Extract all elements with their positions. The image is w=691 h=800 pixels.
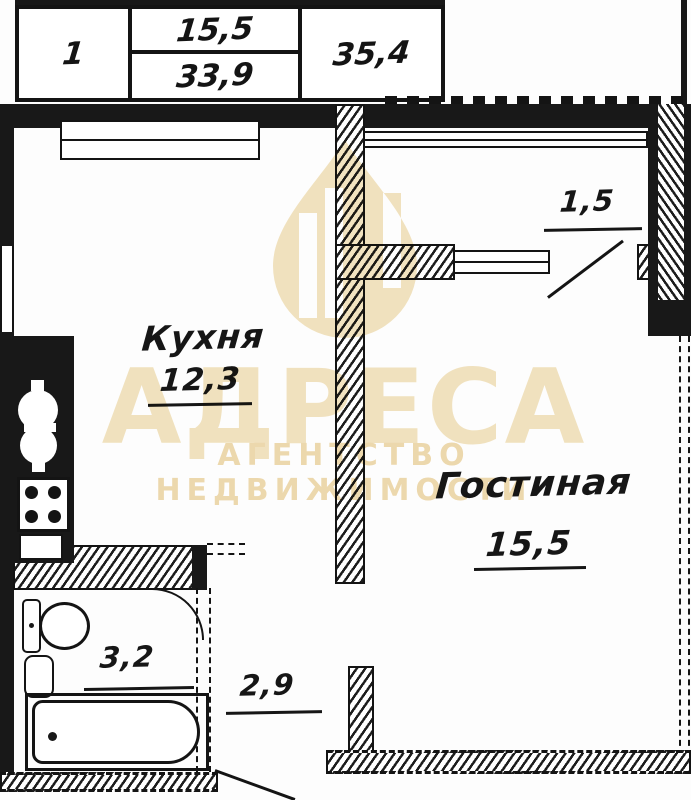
balcony-area-label: 1,5 <box>559 183 616 218</box>
area-table: 1 15,5 33,9 35,4 <box>15 5 445 102</box>
wall-right-corner-block <box>648 300 691 336</box>
table-cell-flat-number: 1 <box>19 9 132 98</box>
flat-number-value: 1 <box>14 7 133 100</box>
kitchen-sink-bowl-bottom <box>20 427 57 464</box>
total-area-value: 33,9 <box>129 51 300 101</box>
wall-right-top-edge <box>681 0 687 106</box>
window-kitchen <box>60 120 260 160</box>
kitchen-sink-divider <box>24 423 56 432</box>
hallway-area-underline <box>226 710 322 715</box>
living-room-area-underline <box>474 566 586 571</box>
hallway-area-label: 2,9 <box>239 667 296 702</box>
wall-bathroom-top-endcap <box>192 545 207 590</box>
table-subcell-living-area: 15,5 <box>132 9 298 54</box>
kitchen-faucet-mark-bottom <box>32 461 45 472</box>
wall-right-hatch <box>658 104 684 304</box>
bathroom-area-label: 3,2 <box>99 639 156 674</box>
balcony-rail <box>352 131 648 148</box>
wall-right-outer-line <box>684 104 691 304</box>
wall-balcony-left-segment <box>335 244 455 280</box>
kitchen-label: Кухня <box>140 316 266 359</box>
wall-bottom-bathroom <box>0 772 218 792</box>
kitchen-area-underline <box>148 402 252 407</box>
living-room-area-label: 15,5 <box>484 523 573 564</box>
table-cell-overall-area: 35,4 <box>302 9 441 98</box>
wall-central-stub <box>348 666 374 758</box>
table-subcell-total-area: 33,9 <box>132 54 298 98</box>
wall-top-dashed-texture <box>385 96 685 104</box>
bathroom-area-underline <box>84 686 194 691</box>
kitchen-cabinet <box>19 534 63 560</box>
bathtub <box>32 700 200 764</box>
kitchen-faucet-mark-top <box>31 380 44 391</box>
toilet-flush-button <box>29 623 34 628</box>
wall-right-lower-dashed-2 <box>688 336 690 756</box>
table-cell-areas: 15,5 33,9 <box>132 9 302 98</box>
toilet-bowl <box>39 602 90 650</box>
wall-dashed-stub-hall <box>207 543 245 555</box>
wall-right-lower-dashed-1 <box>679 336 681 756</box>
stove-burner <box>25 510 38 523</box>
overall-area-value: 35,4 <box>297 7 446 101</box>
balcony-area-underline <box>544 227 642 232</box>
stove-burner <box>25 486 38 499</box>
kitchen-area-label: 12,3 <box>158 361 242 399</box>
window-balcony <box>453 250 550 274</box>
living-area-value: 15,5 <box>129 6 300 53</box>
stove-burner <box>48 486 61 499</box>
wall-bathroom-right-dashed-2 <box>209 588 211 772</box>
wall-central-divider <box>335 104 365 584</box>
window-left-wall <box>0 246 14 332</box>
balcony-door-swing <box>547 240 624 299</box>
wall-right-inner-line <box>648 104 658 304</box>
living-room-label: Гостиная <box>434 461 633 507</box>
stove-burner <box>48 510 61 523</box>
entrance-door-swing <box>214 769 295 800</box>
stove <box>17 477 70 532</box>
wash-basin <box>24 655 54 698</box>
scanned-floor-plan-page: 1 15,5 33,9 35,4 <box>0 0 691 800</box>
bathtub-drain <box>48 732 57 741</box>
wall-bottom-living <box>326 750 691 774</box>
